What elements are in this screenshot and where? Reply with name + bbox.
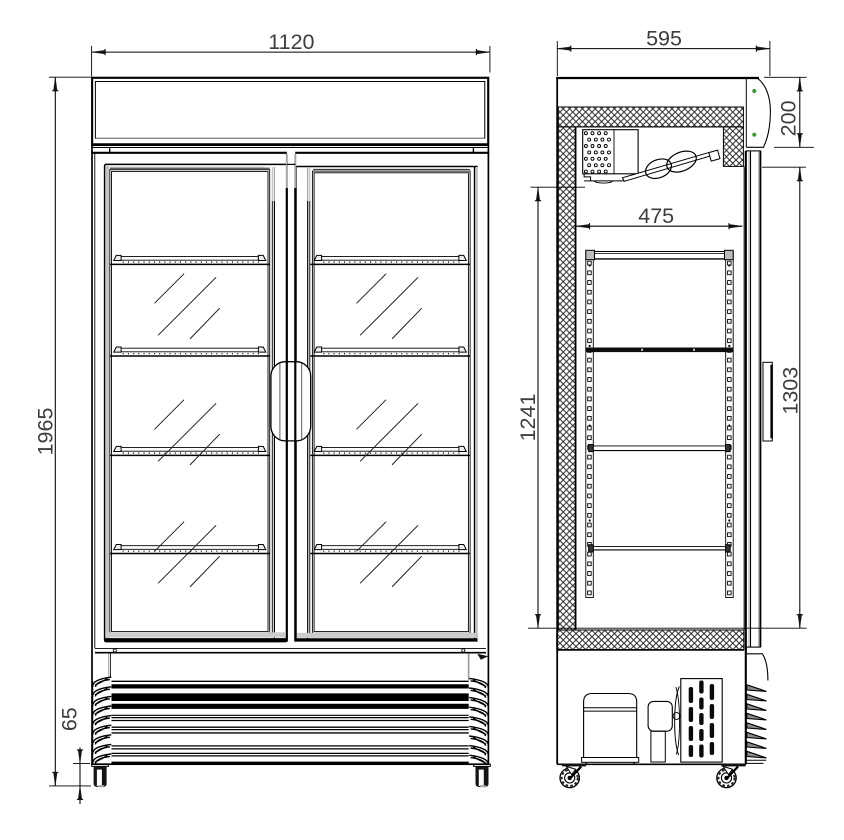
svg-text:65: 65 — [57, 707, 81, 731]
svg-text:475: 475 — [638, 204, 674, 228]
svg-text:200: 200 — [776, 100, 800, 136]
svg-text:1241: 1241 — [516, 394, 540, 442]
svg-text:1120: 1120 — [268, 30, 314, 54]
svg-text:595: 595 — [646, 27, 682, 51]
svg-text:1965: 1965 — [33, 408, 57, 456]
svg-text:1303: 1303 — [778, 367, 802, 415]
